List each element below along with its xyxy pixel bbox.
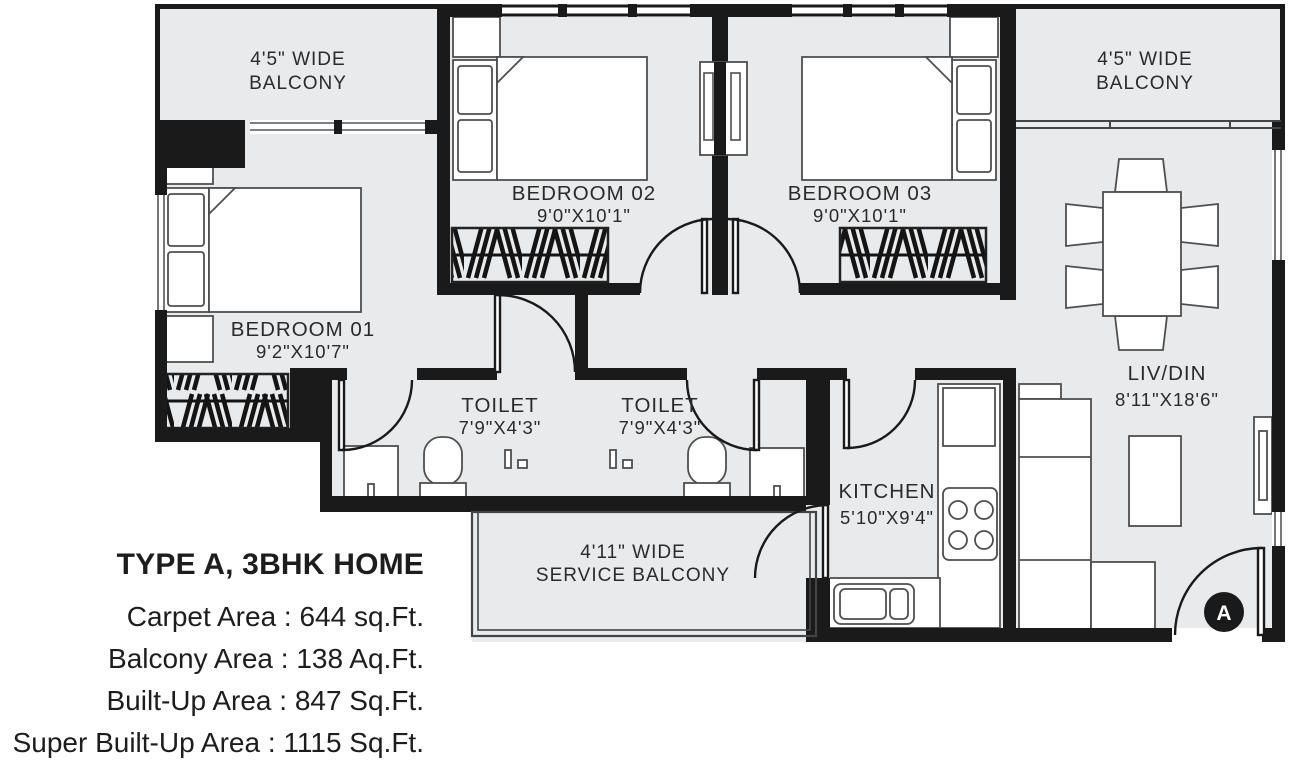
door-leaf — [1258, 548, 1264, 635]
wall-segment — [155, 120, 245, 168]
wall-segment — [155, 428, 302, 442]
wall-segment — [320, 368, 332, 512]
label-toilet-1-size: 7'9"X4'3" — [459, 417, 542, 438]
tap-icon — [368, 484, 374, 498]
label-toilet-2-size: 7'9"X4'3" — [619, 417, 702, 438]
area-line: Built-Up Area : 847 Sq.Ft. — [0, 680, 424, 722]
wall-segment — [320, 496, 806, 512]
label-toilet-1: TOILET — [461, 394, 538, 417]
mattress — [209, 188, 361, 312]
wall-segment — [1272, 120, 1285, 150]
chair-icon — [1181, 204, 1218, 246]
wall-segment — [690, 4, 792, 17]
label-bedroom-02-size: 9'0"X10'1" — [537, 205, 631, 226]
burner-icon — [949, 531, 967, 549]
tv-unit-icon — [1254, 417, 1272, 514]
door-leaf — [339, 380, 344, 450]
sofa-chaise — [1091, 562, 1155, 629]
wall-segment — [155, 168, 167, 195]
label-balcony-left: 4'5" WIDE — [250, 49, 345, 70]
area-value: 847 Sq.Ft. — [295, 685, 424, 716]
pillow-icon — [458, 120, 492, 172]
label-balcony-right: 4'5" WIDE — [1097, 49, 1192, 70]
sink-bowl — [840, 589, 886, 619]
area-label: Built-Up Area — [107, 685, 272, 716]
pillow-icon — [458, 66, 492, 114]
shower-tap-icon — [610, 450, 616, 468]
label-balcony-left: BALCONY — [249, 73, 347, 94]
nightstand-icon — [453, 17, 500, 57]
wall-segment — [1003, 368, 1016, 642]
wall-segment — [830, 368, 847, 380]
wall-segment — [1016, 4, 1285, 9]
area-label: Carpet Area — [127, 601, 276, 632]
wc-base — [420, 483, 466, 497]
area-line: Super Built-Up Area : 1115 Sq.Ft. — [0, 722, 424, 764]
fridge-icon — [943, 388, 995, 446]
label-bedroom-01: BEDROOM 01 — [231, 318, 375, 341]
shower-tap-icon — [505, 450, 511, 468]
wall-segment — [712, 17, 728, 295]
burner-icon — [975, 501, 993, 519]
label-service-balcony: SERVICE BALCONY — [536, 565, 730, 586]
area-line: Carpet Area : 644 sq.Ft. — [0, 596, 424, 638]
wc-icon — [688, 437, 726, 485]
chair-icon — [1066, 266, 1103, 308]
label-kitchen: KITCHEN — [839, 480, 936, 503]
area-separator: : — [271, 685, 294, 716]
chair-icon — [1181, 266, 1218, 308]
mattress — [802, 57, 952, 180]
wall-segment — [437, 283, 640, 295]
window-icon — [502, 4, 690, 17]
area-value: 644 sq.Ft. — [299, 601, 424, 632]
area-value: 1115 Sq.Ft. — [283, 727, 424, 758]
door-leaf — [495, 295, 500, 372]
table-top — [1103, 192, 1181, 316]
window-icon — [1272, 512, 1285, 546]
wall-segment — [806, 368, 830, 505]
label-bedroom-03-size: 9'0"X10'1" — [813, 205, 907, 226]
label-balcony-right: BALCONY — [1096, 73, 1194, 94]
coffee-table-icon — [1129, 436, 1181, 526]
shower-tap-icon — [518, 460, 527, 468]
sink-bowl — [890, 589, 908, 619]
wall-segment — [155, 4, 160, 124]
door-leaf — [844, 380, 849, 448]
wc-base — [684, 483, 730, 497]
wall-segment — [806, 628, 1172, 642]
sofa-pad — [1019, 384, 1061, 399]
label-service-balcony: 4'11" WIDE — [580, 542, 686, 563]
wall-segment — [425, 120, 437, 134]
pillow-icon — [168, 194, 204, 246]
burner-icon — [975, 531, 993, 549]
entrance-marker: A — [1204, 592, 1244, 632]
area-label: Balcony Area — [108, 643, 273, 674]
window-icon — [792, 4, 947, 17]
label-liv-din-size: 8'11"X18'6" — [1115, 389, 1219, 410]
door-leaf — [702, 219, 707, 293]
door-leaf — [733, 219, 738, 293]
label-toilet-2: TOILET — [621, 394, 698, 417]
chair-icon — [1115, 159, 1167, 192]
shaft-duct-icon — [700, 62, 747, 155]
wall-segment — [417, 368, 497, 380]
burner-icon — [949, 501, 967, 519]
wall-segment — [155, 4, 437, 9]
area-separator: : — [276, 601, 299, 632]
nightstand-icon — [950, 17, 998, 57]
wall-segment — [437, 4, 450, 295]
wall-segment — [155, 310, 167, 442]
window-icon — [250, 120, 425, 134]
plan-title: TYPE A, 3BHK HOME — [0, 548, 424, 582]
nightstand-icon — [163, 316, 213, 362]
chair-icon — [1115, 316, 1167, 350]
window-icon — [1272, 150, 1285, 260]
tv-unit-inner — [1259, 431, 1267, 500]
wall-segment — [757, 368, 806, 380]
chair-icon — [1066, 204, 1103, 246]
wall-segment — [1000, 4, 1016, 300]
door-leaf — [823, 505, 828, 578]
wc-icon — [424, 437, 462, 485]
door-leaf — [754, 380, 759, 450]
wall-segment — [915, 368, 1003, 380]
area-separator: : — [260, 727, 283, 758]
wall-segment — [588, 368, 687, 380]
shower-tap-icon — [623, 460, 632, 468]
wall-segment — [1280, 4, 1285, 122]
wall-segment — [800, 283, 1000, 295]
mattress — [497, 57, 647, 180]
pillow-icon — [168, 252, 204, 306]
area-value: 138 Aq.Ft. — [296, 643, 424, 674]
label-bedroom-01-size: 9'2"X10'7" — [256, 341, 350, 362]
label-bedroom-02: BEDROOM 02 — [512, 182, 656, 205]
label-kitchen-size: 5'10"X9'4" — [840, 507, 934, 528]
sofa-body — [1019, 399, 1091, 629]
area-label: Super Built-Up Area — [13, 727, 260, 758]
wall-segment — [575, 290, 588, 380]
label-bedroom-03: BEDROOM 03 — [788, 182, 932, 205]
label-liv-din: LIV/DIN — [1128, 362, 1207, 385]
entrance-marker-label: A — [1216, 602, 1231, 625]
wall-segment — [1272, 546, 1285, 642]
area-separator: : — [273, 643, 296, 674]
wall-segment — [1272, 260, 1285, 512]
pillow-icon — [957, 120, 991, 172]
hob-icon — [943, 488, 997, 560]
plan-info: TYPE A, 3BHK HOME Carpet Area : 644 sq.F… — [0, 548, 424, 764]
area-line: Balcony Area : 138 Aq.Ft. — [0, 638, 424, 680]
window-icon — [155, 195, 167, 310]
pillow-icon — [957, 66, 991, 114]
